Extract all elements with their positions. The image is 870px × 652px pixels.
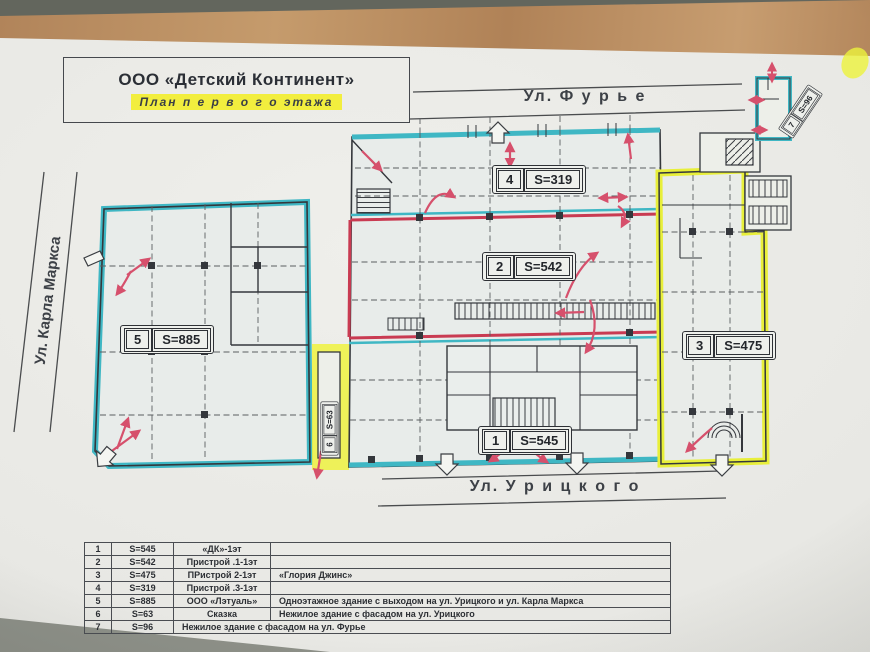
area-label-2: 2 S=542 xyxy=(482,252,576,281)
legend-area: S=542 xyxy=(112,556,174,569)
legend-desc xyxy=(271,556,671,569)
legend-area: S=319 xyxy=(112,582,174,595)
legend-row-7: 7 S=96 Нежилое здание с фасадом на ул. Ф… xyxy=(85,621,671,634)
area-number: 6 xyxy=(324,437,336,451)
legend-desc: «Глория Джинс» xyxy=(271,569,671,582)
legend-name: ООО «Лэтуаль» xyxy=(174,595,271,608)
legend-area: S=96 xyxy=(112,621,174,634)
area-size: S=542 xyxy=(516,257,570,276)
legend-area: S=63 xyxy=(112,608,174,621)
plan-subtitle: План п е р в о г о этажа xyxy=(131,94,343,110)
legend-name: ПРистрой 2-1эт xyxy=(174,569,271,582)
legend-desc: Нежилое здание с фасадом на ул. Урицкого xyxy=(271,608,671,621)
legend-area: S=545 xyxy=(112,543,174,556)
area-number: 2 xyxy=(488,257,511,276)
area-size: S=319 xyxy=(526,170,580,189)
legend-area: S=885 xyxy=(112,595,174,608)
legend-num: 2 xyxy=(85,556,112,569)
photo-scene: ООО «Детский Континент» План п е р в о г… xyxy=(0,0,870,652)
company-name: ООО «Детский Континент» xyxy=(118,70,354,90)
area-size: S=545 xyxy=(512,431,566,450)
legend-name: «ДК»-1эт xyxy=(174,543,271,556)
highlighter-blob xyxy=(836,43,870,83)
building-3-gloria-jeans xyxy=(659,170,791,464)
legend-num: 1 xyxy=(85,543,112,556)
title-block: ООО «Детский Континент» План п е р в о г… xyxy=(63,57,410,123)
area-label-4: 4 S=319 xyxy=(492,165,586,194)
legend-row-4: 4 S=319 Пристрой .3-1эт xyxy=(85,582,671,595)
legend-row-5: 5 S=885 ООО «Лэтуаль» Одноэтажное здание… xyxy=(85,595,671,608)
legend-desc xyxy=(271,582,671,595)
area-number: 4 xyxy=(498,170,521,189)
legend-row-2: 2 S=542 Пристрой .1-1эт xyxy=(85,556,671,569)
legend-table: 1 S=545 «ДК»-1эт 2 S=542 Пристрой .1-1эт… xyxy=(84,542,671,634)
legend-desc: Одноэтажное здание с выходом на ул. Уриц… xyxy=(271,595,671,608)
area-label-3: 3 S=475 xyxy=(682,331,776,360)
street-label-furye: Ул. Ф у р ь е xyxy=(460,88,710,106)
area-number: 5 xyxy=(126,330,149,349)
area-size: S=475 xyxy=(716,336,770,355)
legend-row-6: 6 S=63 Сказка Нежилое здание с фасадом н… xyxy=(85,608,671,621)
top-annex xyxy=(700,133,760,172)
area-label-5: 5 S=885 xyxy=(120,325,214,354)
area-number: 3 xyxy=(688,336,711,355)
legend-row-3: 3 S=475 ПРистрой 2-1эт «Глория Джинс» xyxy=(85,569,671,582)
area-size: S=885 xyxy=(154,330,208,349)
legend-desc xyxy=(271,543,671,556)
street-label-uritskogo: Ул. У р и ц к о г о xyxy=(420,478,690,496)
legend-name: Нежилое здание с фасадом на ул. Фурье xyxy=(174,621,671,634)
legend-name: Сказка xyxy=(174,608,271,621)
area-size: S=63 xyxy=(324,405,336,434)
legend-row-1: 1 S=545 «ДК»-1эт xyxy=(85,543,671,556)
area-label-1: 1 S=545 xyxy=(478,426,572,455)
legend-num: 4 xyxy=(85,582,112,595)
legend-name: Пристрой .3-1эт xyxy=(174,582,271,595)
area-number: 1 xyxy=(484,431,507,450)
legend-num: 3 xyxy=(85,569,112,582)
legend-num: 6 xyxy=(85,608,112,621)
legend-num: 7 xyxy=(85,621,112,634)
legend-name: Пристрой .1-1эт xyxy=(174,556,271,569)
legend-area: S=475 xyxy=(112,569,174,582)
area-label-6: 6 S=63 xyxy=(320,402,338,456)
legend-num: 5 xyxy=(85,595,112,608)
